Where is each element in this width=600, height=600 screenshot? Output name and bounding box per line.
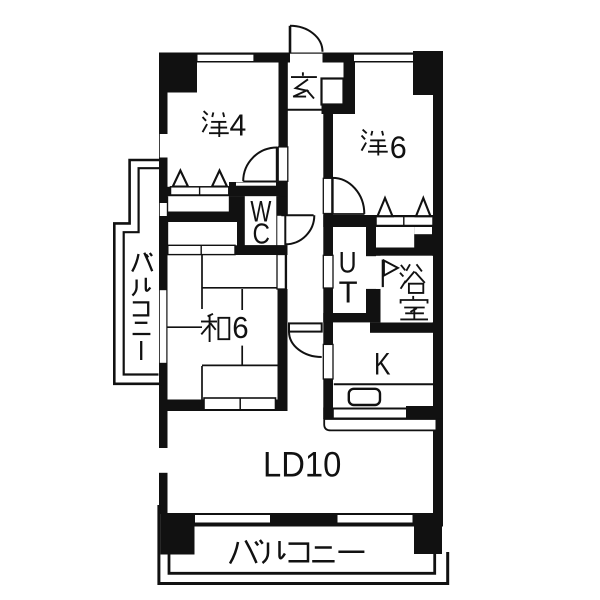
svg-text:K: K (374, 346, 391, 381)
svg-text:6: 6 (390, 129, 407, 165)
svg-text:6: 6 (232, 310, 248, 345)
svg-text:U: U (339, 247, 357, 280)
svg-text:LD10: LD10 (263, 446, 341, 485)
svg-text:T: T (339, 276, 358, 310)
svg-text:C: C (252, 219, 270, 251)
svg-text:4: 4 (230, 108, 247, 143)
